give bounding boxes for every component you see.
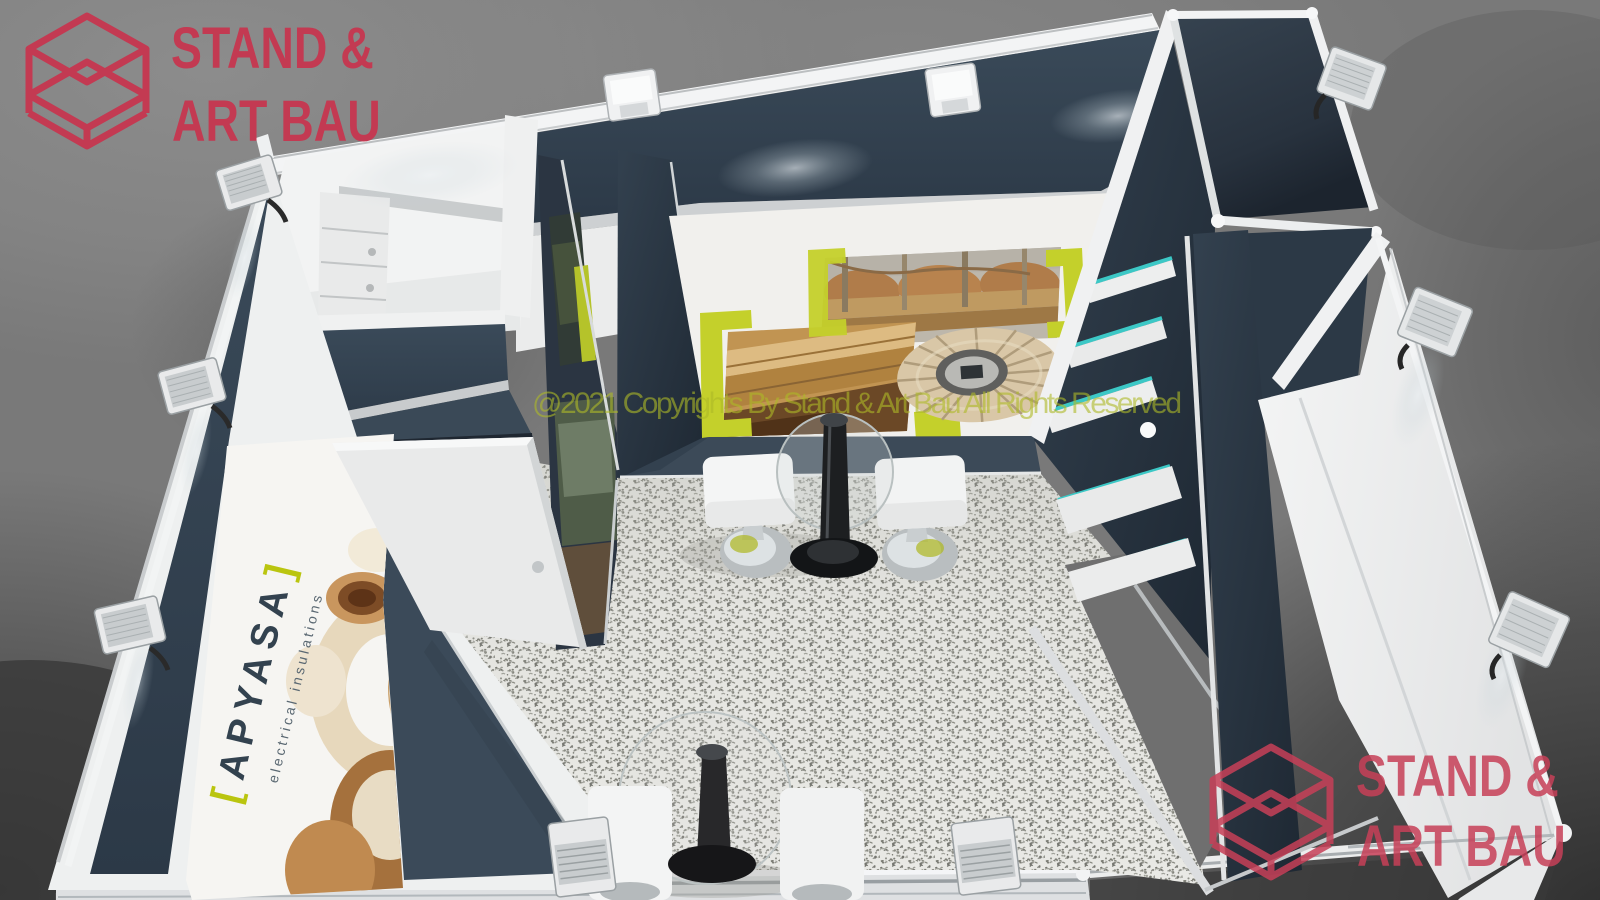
svg-text:ART BAU: ART BAU [172,89,381,154]
svg-text:STAND &: STAND & [171,16,374,81]
svg-text:STAND &: STAND & [1356,744,1559,809]
svg-text:ART BAU: ART BAU [1357,814,1566,879]
svg-text:@2021 Copyrights By Stand & Ar: @2021 Copyrights By Stand & Art Bau All … [532,387,1182,420]
